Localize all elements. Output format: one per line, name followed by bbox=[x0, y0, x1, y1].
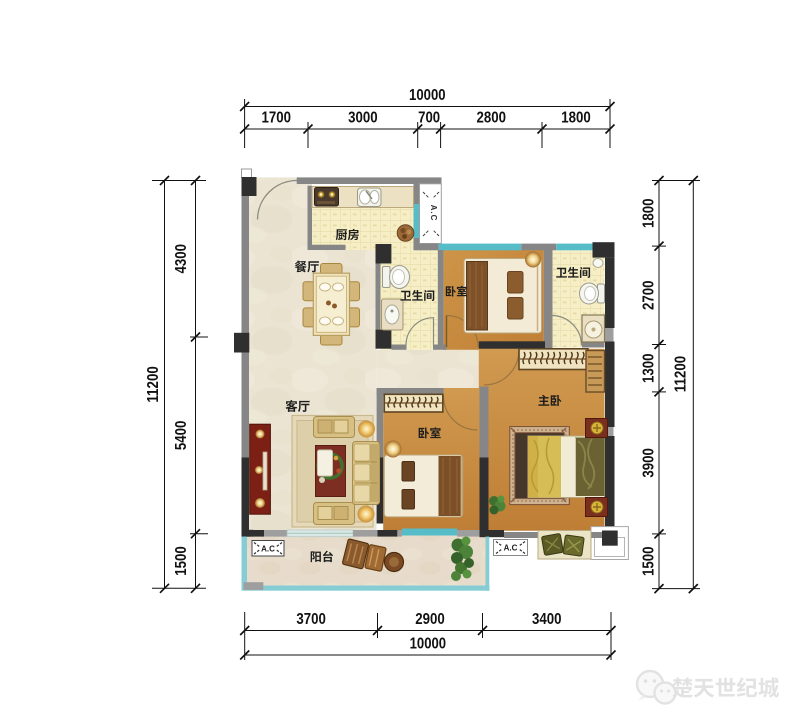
svg-text:3000: 3000 bbox=[348, 110, 378, 127]
svg-text:A.C: A.C bbox=[261, 545, 275, 554]
svg-text:A.C: A.C bbox=[429, 205, 438, 222]
svg-text:1500: 1500 bbox=[173, 546, 190, 576]
svg-text:1300: 1300 bbox=[641, 353, 658, 383]
svg-text:A.C: A.C bbox=[504, 544, 518, 553]
svg-text:2800: 2800 bbox=[477, 110, 507, 127]
svg-text:3400: 3400 bbox=[532, 611, 562, 628]
svg-text:1700: 1700 bbox=[262, 110, 292, 127]
svg-text:1800: 1800 bbox=[641, 198, 658, 228]
svg-text:10000: 10000 bbox=[410, 636, 447, 653]
svg-text:1800: 1800 bbox=[561, 110, 591, 127]
svg-text:5400: 5400 bbox=[173, 421, 190, 451]
svg-text:700: 700 bbox=[418, 110, 440, 127]
svg-text:3900: 3900 bbox=[641, 448, 658, 478]
svg-text:2700: 2700 bbox=[641, 280, 658, 310]
svg-text:10000: 10000 bbox=[409, 87, 446, 104]
svg-text:2900: 2900 bbox=[415, 611, 445, 628]
svg-text:3700: 3700 bbox=[296, 611, 326, 628]
svg-text:11200: 11200 bbox=[145, 366, 162, 403]
svg-text:11200: 11200 bbox=[673, 356, 690, 393]
svg-text:1500: 1500 bbox=[641, 546, 658, 576]
svg-text:4300: 4300 bbox=[173, 244, 190, 274]
